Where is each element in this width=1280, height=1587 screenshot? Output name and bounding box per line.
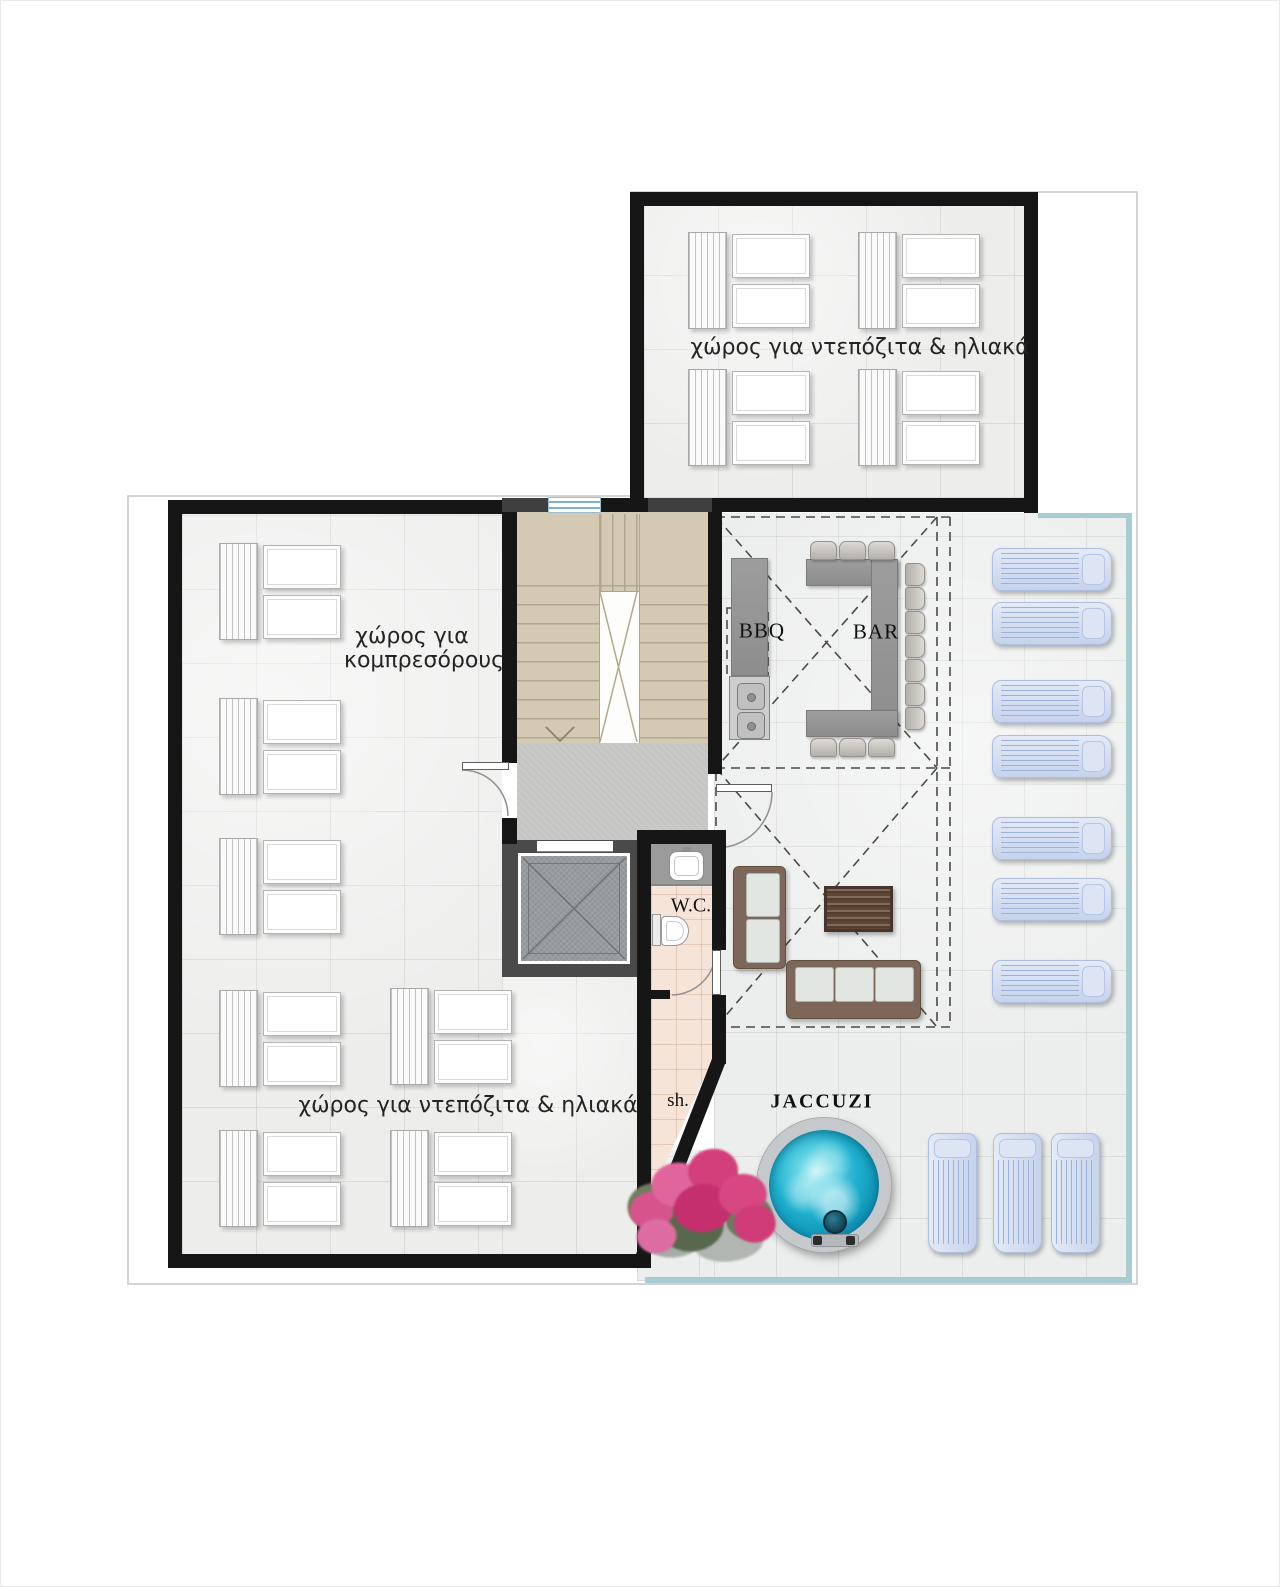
- storage-room-label: χώρος για ντεπόζιτα & ηλιακά: [298, 1094, 637, 1118]
- stair-upper-flight: [599, 514, 640, 591]
- bar-stool: [905, 683, 925, 706]
- stair-well: [599, 591, 640, 745]
- bar-stool: [905, 611, 925, 634]
- solar-panel: [219, 990, 258, 1087]
- toilet-tank: [652, 914, 661, 946]
- bbq-sink: [729, 676, 770, 740]
- water-tank: [263, 595, 341, 639]
- sink-basin: [737, 712, 765, 739]
- jacuzzi-control: [823, 1210, 847, 1234]
- wall-segment: [502, 512, 517, 763]
- water-tank: [263, 992, 341, 1036]
- sofa-three-seater: [786, 960, 921, 1019]
- solar-panel: [858, 369, 897, 466]
- solar-panel-tank-group: [390, 1130, 511, 1227]
- landing-floor: [517, 743, 708, 840]
- water-tank: [263, 890, 341, 934]
- wall-segment: [712, 840, 726, 950]
- sofa-cushion: [746, 919, 780, 963]
- wc-label: W.C.: [671, 895, 711, 918]
- bar-stool: [839, 738, 866, 757]
- sun-lounger: [992, 602, 1112, 645]
- water-tank: [732, 421, 810, 465]
- sink-basin: [737, 683, 765, 710]
- bar-stool: [905, 707, 925, 730]
- floor-plan-page: χώρος για ντεπόζιτα & ηλιακά χώρος για κ…: [0, 0, 1280, 1587]
- compressor-room-label-line1: χώρος για: [355, 625, 468, 649]
- sun-lounger: [992, 878, 1112, 921]
- water-tank: [434, 1040, 512, 1084]
- wc-sink: [669, 851, 704, 881]
- sofa-two-seater: [733, 866, 786, 969]
- water-tank: [732, 234, 810, 278]
- solar-panel-tank-group: [219, 543, 340, 640]
- elevator-wall: [505, 964, 643, 977]
- water-tank: [434, 1182, 512, 1226]
- bar-stool: [905, 587, 925, 610]
- solar-panel: [688, 232, 727, 329]
- solar-panel: [219, 1130, 258, 1227]
- terrace-edge-trim-bottom: [645, 1277, 1132, 1283]
- solar-panel-tank-group: [688, 369, 809, 466]
- solar-panel-tank-group: [219, 698, 340, 795]
- water-tank: [263, 1042, 341, 1086]
- water-tank: [902, 234, 980, 278]
- water-tank: [263, 545, 341, 589]
- sun-lounger: [1051, 1133, 1100, 1253]
- compressor-room-label-line2: κομπρεσόρους: [344, 649, 504, 673]
- sun-lounger: [992, 680, 1112, 723]
- sun-lounger: [993, 1133, 1042, 1253]
- jacuzzi-jet: [846, 1236, 855, 1245]
- toilet-bowl: [661, 916, 689, 946]
- wall-segment: [168, 1254, 651, 1268]
- solar-panel: [858, 232, 897, 329]
- solar-panel-tank-group: [219, 990, 340, 1087]
- bbq-counter: [731, 558, 768, 676]
- bar-stool: [905, 635, 925, 658]
- bar-stool: [839, 541, 866, 560]
- sofa-cushion: [795, 967, 834, 1002]
- wall-segment: [708, 512, 722, 774]
- wall-segment-dark: [502, 498, 549, 512]
- wall-segment: [168, 500, 182, 1268]
- main-room-door-leaf: [462, 762, 509, 770]
- water-tank: [263, 840, 341, 884]
- bar-label: BAR: [853, 620, 899, 645]
- bar-stool: [868, 541, 895, 560]
- bougainvillea-plant: [622, 1140, 786, 1277]
- wall-segment: [712, 995, 726, 1064]
- water-tank: [263, 1132, 341, 1176]
- bar-stool: [905, 563, 925, 586]
- solar-panel: [219, 543, 258, 640]
- solar-panel: [390, 1130, 429, 1227]
- bbq-label: BBQ: [739, 619, 785, 644]
- water-tank: [263, 750, 341, 794]
- jacuzzi-label: JACCUZI: [771, 1091, 874, 1114]
- water-tank: [902, 284, 980, 328]
- solar-panel: [390, 988, 429, 1085]
- sun-lounger: [928, 1133, 977, 1253]
- sofa-cushion: [875, 967, 914, 1002]
- elevator-door: [537, 841, 613, 852]
- terrace-door-leaf: [716, 784, 772, 792]
- coffee-table: [824, 886, 893, 932]
- water-tank: [902, 371, 980, 415]
- sun-lounger: [992, 960, 1112, 1003]
- solar-panel-tank-group: [858, 232, 979, 329]
- water-tank: [902, 421, 980, 465]
- terrace-edge-trim-right: [1126, 513, 1132, 1281]
- sun-lounger: [992, 817, 1112, 860]
- wall-segment: [502, 818, 517, 844]
- bar-stool: [868, 738, 895, 757]
- roof-room-label: χώρος για ντεπόζιτα & ηλιακά: [690, 336, 1029, 360]
- wall-segment-dark: [648, 498, 712, 512]
- staircase: [517, 512, 708, 743]
- sofa-cushion: [746, 873, 780, 917]
- wall-segment: [630, 192, 644, 512]
- solar-panel: [219, 838, 258, 935]
- solar-panel-tank-group: [858, 369, 979, 466]
- elevator-wall: [502, 840, 518, 977]
- solar-panel-tank-group: [688, 232, 809, 329]
- water-tank: [263, 1182, 341, 1226]
- wall-segment: [168, 500, 502, 514]
- jacuzzi-jet: [813, 1236, 822, 1245]
- sun-lounger: [992, 548, 1112, 591]
- stair-window: [549, 498, 600, 512]
- sun-lounger: [992, 735, 1112, 778]
- sofa-cushion: [835, 967, 874, 1002]
- bar-counter-bottom: [806, 710, 898, 737]
- wall-segment: [647, 990, 670, 999]
- water-tank: [732, 371, 810, 415]
- water-tank: [732, 284, 810, 328]
- water-tank: [434, 990, 512, 1034]
- solar-panel-tank-group: [390, 988, 511, 1085]
- wc-door-leaf: [712, 950, 721, 995]
- solar-panel: [219, 698, 258, 795]
- solar-panel: [688, 369, 727, 466]
- shower-label: sh.: [667, 1090, 689, 1112]
- bar-stool: [905, 659, 925, 682]
- solar-panel-tank-group: [219, 1130, 340, 1227]
- elevator-cab: [521, 856, 627, 961]
- solar-panel-tank-group: [219, 838, 340, 935]
- wall-segment: [630, 192, 1038, 206]
- terrace-edge-trim-top: [1038, 513, 1131, 518]
- water-tank: [434, 1132, 512, 1176]
- bar-stool: [810, 738, 837, 757]
- bar-stool: [810, 541, 837, 560]
- water-tank: [263, 700, 341, 744]
